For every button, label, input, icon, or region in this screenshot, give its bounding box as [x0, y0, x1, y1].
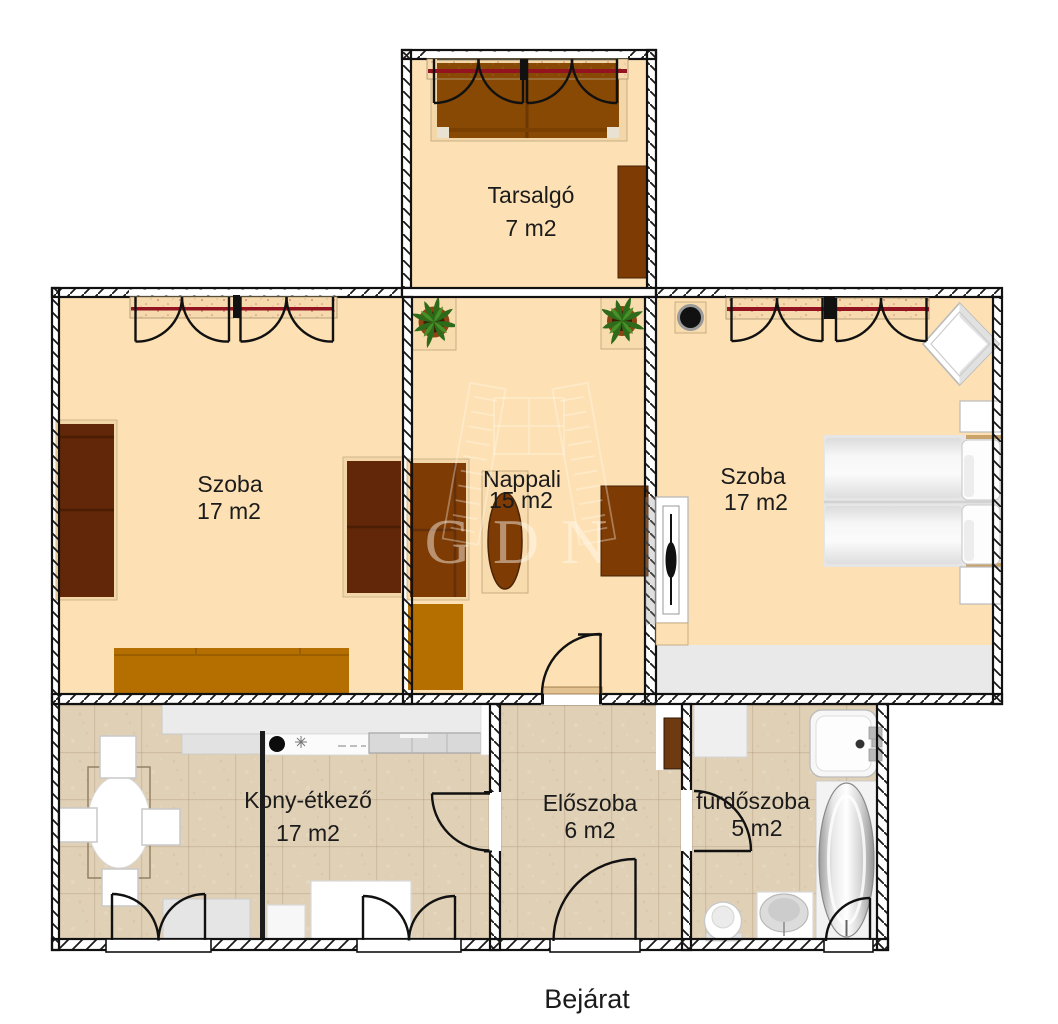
svg-text:7 m2: 7 m2 [505, 215, 556, 241]
svg-text:Előszoba: Előszoba [543, 790, 638, 816]
svg-text:Tarsalgó: Tarsalgó [488, 182, 575, 208]
svg-text:Kony-étkező: Kony-étkező [244, 787, 372, 813]
svg-text:Szoba: Szoba [197, 471, 262, 497]
svg-text:17 m2: 17 m2 [197, 498, 261, 524]
svg-text:Szoba: Szoba [720, 463, 785, 489]
svg-text:6 m2: 6 m2 [564, 817, 615, 843]
svg-text:furdőszoba: furdőszoba [696, 788, 810, 814]
svg-text:5 m2: 5 m2 [731, 815, 782, 841]
svg-text:17 m2: 17 m2 [276, 820, 340, 846]
svg-text:17 m2: 17 m2 [724, 489, 788, 515]
svg-text:Bejárat: Bejárat [544, 984, 630, 1014]
svg-text:GDN: GDN [425, 506, 630, 577]
